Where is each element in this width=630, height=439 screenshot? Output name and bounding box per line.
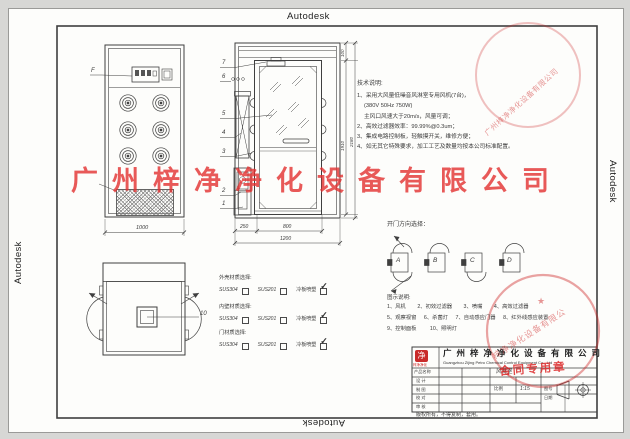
material-group2-title: 内壁材质选择: [219,305,252,310]
legend-item: 2、初效过滤器 [417,304,452,310]
callout-3: 3 [222,149,225,155]
legend-item: 6、杀菌灯 [424,315,448,321]
legend-item: 7、自动感应门器 [456,315,496,321]
center-watermark: 广州梓净净化设备有限公司 [71,159,563,198]
material-group3-row: SUS304 SUS201 冷板喷塑 ✓ [219,342,327,349]
audit-label: 审 核 [416,405,426,409]
material-checkbox[interactable] [242,288,249,295]
check-label: 校 对 [416,396,426,400]
material-checkbox[interactable] [242,343,249,350]
callout-5: 5 [222,111,225,117]
material-opt: SUS304 [219,317,238,322]
dim-total-height: 2180 [350,137,355,147]
autodesk-border-left: Autodesk [14,241,24,284]
legend-item: 10、照明灯 [430,326,457,332]
tech-notes: 技术说明: 1、采用大风量低噪音风淋室专用风机(7台)， (380V 50Hz … [357,81,514,153]
material-opt: 冷板喷塑 [296,317,316,322]
callout-1: 1 [222,201,225,207]
material-group3-title: 门材质选择: [219,331,246,336]
dim-top-cap: 100 [341,49,346,57]
scale-label: 比例 [494,387,503,392]
tech-note-line: 4、如无其它特殊要求，加工工艺及数量均按本公司标准配置。 [357,142,514,152]
check-mark: ✓ [320,337,328,346]
autodesk-border-top: Autodesk [287,12,330,22]
callout-7: 7 [222,60,225,66]
material-group1-row: SUS304 SUS201 冷板喷塑 ✓ [219,287,327,294]
material-group2-row: SUS304 SUS201 冷板喷塑 ✓ [219,316,327,323]
legend-row3: 9、控制面板 10、照明灯 [387,327,457,332]
material-checkbox[interactable] [280,317,287,324]
product-label: 产品名称 [414,370,431,374]
copyright-note: 版权所有，不得复制，套用。 [416,413,481,418]
material-opt: 冷板喷塑 [296,288,316,293]
material-checkbox-checked[interactable]: ✓ [320,317,327,324]
dim-side-left: 250 [240,225,248,230]
legend-item: 3、喷嘴 [464,304,483,310]
material-checkbox-checked[interactable]: ✓ [320,288,327,295]
door-option-b: B [433,258,437,265]
tech-note-line: 1、采用大风量低噪音风淋室专用风机(7台)， [357,91,514,101]
drawing-no-label: 图号 [544,387,552,391]
company-logo-subtext: 梓净净化 [413,364,427,368]
door-option-a: A [396,258,400,265]
draft-label: 制 图 [416,388,426,392]
material-opt: SUS201 [258,343,277,348]
callout-4: 4 [222,130,225,136]
material-checkbox[interactable] [280,343,287,350]
design-label: 设 计 [416,379,426,383]
tech-note-line: (380V 50Hz 750W) [357,101,514,111]
legend-title: 图示说明: [387,296,411,302]
tech-note-line: 主风口风速大于20m/s，风量可调； [357,112,514,122]
check-mark: ✓ [320,311,328,320]
date-label: 日期 [544,396,552,400]
material-opt: SUS201 [258,317,277,322]
legend-row1: 1、风机 2、初效过滤器 3、喷嘴 4、高效过滤器 [387,305,529,310]
check-mark: ✓ [320,282,328,291]
material-checkbox[interactable] [280,288,287,295]
company-logo: 净 [415,350,428,362]
legend-row2: 5、观察视窗 6、杀菌灯 7、自动感应门器 8、红外线感应装置 [387,316,548,321]
material-opt: SUS304 [219,288,238,293]
legend-item: 9、控制面板 [387,326,416,332]
scale-value: 1:15 [520,387,530,392]
legend-item: 1、风机 [387,304,406,310]
tech-notes-title: 技术说明: [357,81,514,87]
material-opt: SUS304 [219,343,238,348]
autodesk-border-right: Autodesk [608,160,618,203]
callout-top-lamp: 10 [200,311,207,317]
door-direction-title: 开门方向选择： [387,222,429,228]
material-opt: SUS201 [258,288,277,293]
door-option-d: D [507,258,512,265]
callout-6: 6 [222,74,225,80]
dim-front-width: 1000 [136,226,148,232]
dim-side-total: 1200 [280,237,291,242]
legend-item: 4、高效过滤器 [494,304,529,310]
title-company-cn: 广州梓净净化设备有限公司 [443,349,605,358]
material-checkbox[interactable] [242,317,249,324]
callout-front-panel: F [91,68,95,74]
legend-item: 5、观察视窗 [387,315,416,321]
material-group1-title: 外壳材质选择: [219,276,252,281]
material-checkbox-checked[interactable]: ✓ [320,343,327,350]
door-option-c: C [470,258,475,265]
autodesk-border-bottom: Autodesk [302,418,345,428]
seal-star: ★ [537,296,545,307]
material-opt: 冷板喷塑 [296,343,316,348]
dim-door-height: 1910 [341,141,346,151]
drawing-sheet-viewport: Autodesk Autodesk Autodesk Autodesk F 7 … [0,0,630,439]
dim-side-door: 800 [283,225,291,230]
